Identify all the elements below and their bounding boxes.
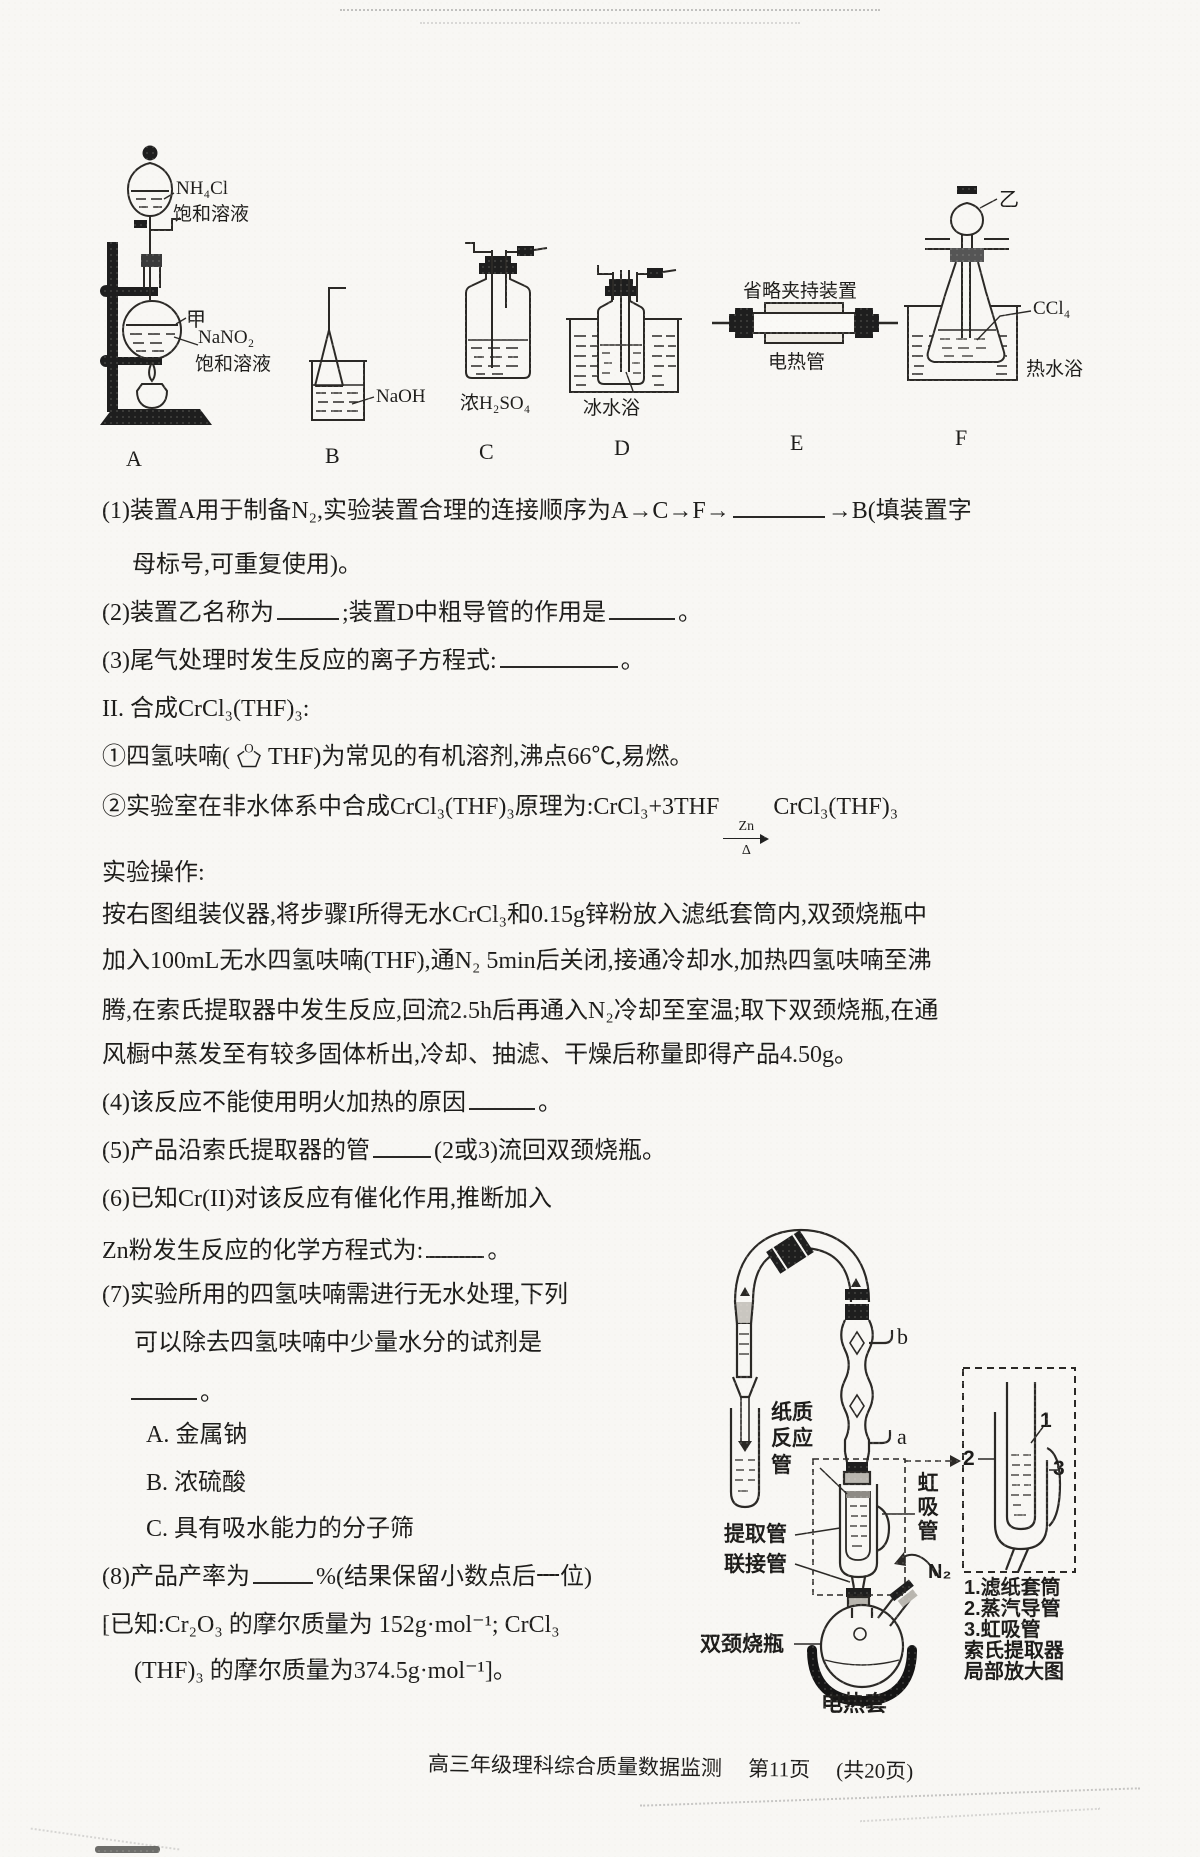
question-2-blank-1[interactable]: [277, 602, 339, 620]
question-4: (4)该反应不能使用明火加热的原因。: [102, 1088, 562, 1118]
siphon-tube-label: 虹吸管: [916, 1472, 940, 1544]
question-1-pre: (1)装置A用于制备N₂,实验装置合理的连接顺序为A→C→F→: [102, 498, 730, 524]
apparatus-f-reagent-label: CCl₄: [1033, 298, 1070, 320]
apparatus-f-device-mark: 乙: [999, 183, 1019, 212]
scan-smudge: [95, 1846, 160, 1853]
paper-reaction-tube-label: 纸质反应管: [771, 1400, 821, 1479]
question-8-pre: (8)产品产率为: [102, 1564, 250, 1590]
known-data-line-1: [已知:Cr₂O₃ 的摩尔质量为 152g·mol⁻¹; CrCl₃: [102, 1610, 560, 1640]
apparatus-c-icon: [465, 243, 547, 378]
question-1-post: →B(填装置字: [828, 498, 972, 524]
procedure-line-4: 风橱中蒸发至有较多固体析出,冷却、抽滤、干燥后称量即得产品4.50g。: [102, 1040, 858, 1070]
apparatus-e-icon: [712, 303, 898, 343]
inset-caption-5: 局部放大图: [964, 1660, 1064, 1685]
question-5-blank[interactable]: [373, 1140, 431, 1158]
procedure-line-3: 腾,在索氏提取器中发生反应,回流2.5h后再通入N₂冷却至室温;取下双颈烧瓶,在…: [102, 996, 938, 1026]
apparatus-b-reagent-label: NaOH: [376, 386, 426, 408]
option-b: B. 浓硫酸: [146, 1468, 246, 1498]
equation-pre: ②实验室在非水体系中合成CrCl₃(THF)₃原理为:CrCl₃+3THF: [102, 794, 719, 820]
apparatus-e-heater-label: 电热管: [768, 347, 825, 374]
apparatus-f-icon: [904, 186, 1031, 380]
option-a: A. 金属钠: [146, 1420, 247, 1450]
operation-title: 实验操作:: [102, 858, 205, 888]
apparatus-c-reagent-label: 浓H₂SO₄: [460, 388, 530, 415]
question-6-end: 。: [487, 1238, 511, 1264]
question-4-pre: (4)该反应不能使用明火加热的原因: [102, 1090, 466, 1116]
soxhlet-apparatus-icon: [731, 1230, 961, 1701]
n2-inlet-label: N₂: [928, 1560, 951, 1585]
question-3-end: 。: [621, 648, 645, 674]
inset-number-1: 1: [1040, 1408, 1052, 1434]
question-3-pre: (3)尾气处理时发生反应的离子方程式:: [102, 648, 497, 674]
arrow-shaft: [723, 834, 769, 844]
question-2-end: 。: [678, 600, 702, 626]
apparatus-d-letter: D: [614, 435, 630, 461]
scan-artifact-bottom-2: [860, 1808, 1100, 1823]
section-2-heading: II. 合成CrCl₃(THF)₃:: [102, 694, 309, 724]
question-7-end: 。: [200, 1380, 224, 1406]
question-2: (2)装置乙名称为;装置D中粗导管的作用是。: [102, 598, 702, 628]
apparatus-f-bath-label: 热水浴: [1026, 354, 1083, 381]
apparatus-c-letter: C: [479, 439, 494, 465]
question-8: (8)产品产率为%(结果保留小数点后一位): [102, 1562, 592, 1592]
question-5: (5)产品沿索氏提取器的管(2或3)流回双颈烧瓶。: [102, 1136, 666, 1166]
scan-artifact-bottom: [640, 1787, 1140, 1806]
reaction-condition-arrow: ZnΔ: [723, 820, 769, 858]
question-2-pre: (2)装置乙名称为: [102, 600, 274, 626]
apparatus-e-note-label: 省略夹持装置: [743, 276, 857, 303]
question-6-line-1: (6)已知Cr(II)对该反应有催化作用,推断加入: [102, 1184, 552, 1214]
question-8-blank[interactable]: [253, 1566, 313, 1584]
note-2-equation: ②实验室在非水体系中合成CrCl₃(THF)₃原理为:CrCl₃+3THFZnΔ…: [102, 792, 898, 858]
question-6-line-2: Zn粉发生反应的化学方程式为:。: [102, 1236, 511, 1266]
port-a-label: a: [897, 1424, 907, 1450]
question-5-pre: (5)产品沿索氏提取器的管: [102, 1138, 370, 1164]
footer-page-number: 第11页: [748, 1753, 811, 1784]
known-data-line-2: (THF)₃ 的摩尔质量为374.5g·mol⁻¹]。: [134, 1656, 517, 1686]
question-3: (3)尾气处理时发生反应的离子方程式:。: [102, 646, 645, 676]
extract-tube-label: 提取管: [724, 1522, 787, 1548]
port-b-label: b: [897, 1324, 908, 1350]
connect-tube-label: 联接管: [724, 1552, 787, 1578]
question-1-line-1: (1)装置A用于制备N₂,实验装置合理的连接顺序为A→C→F→→B(填装置字: [102, 496, 972, 526]
scan-artifact-top: [340, 9, 880, 11]
apparatus-a-reagent-label-2: 饱和溶液: [173, 199, 249, 226]
arrow-bottom-condition: Δ: [742, 844, 751, 858]
apparatus-a-letter: A: [126, 446, 142, 472]
scan-artifact-top-2: [420, 22, 800, 24]
equation-post: CrCl₃(THF)₃: [773, 794, 898, 820]
question-7-blank[interactable]: [131, 1382, 197, 1400]
inset-number-2: 2: [963, 1446, 975, 1472]
question-7-blank-line: 。: [128, 1378, 224, 1408]
arrow-top-condition: Zn: [739, 820, 755, 834]
apparatus-b-letter: B: [325, 443, 340, 469]
note-1-post: THF)为常见的有机溶剂,沸点66℃,易燃。: [268, 744, 693, 770]
question-7-line-1: (7)实验所用的四氢呋喃需进行无水处理,下列: [102, 1280, 568, 1310]
procedure-line-1: 按右图组装仪器,将步骤I所得无水CrCl₃和0.15g锌粉放入滤纸套筒内,双颈烧…: [102, 900, 927, 930]
footer-page-total: (共20页): [836, 1754, 913, 1785]
question-6-blank[interactable]: [426, 1240, 484, 1258]
note-1-pre: ①四氢呋喃(: [102, 744, 230, 770]
svg-text:O: O: [244, 742, 253, 756]
apparatus-a-reagent-label: NH₄Cl: [176, 178, 228, 200]
question-7-line-2: 可以除去四氢呋喃中少量水分的试剂是: [134, 1328, 542, 1358]
question-4-end: 。: [538, 1090, 562, 1116]
question-2-blank-2[interactable]: [609, 602, 675, 620]
thf-ring-structure-icon: O: [234, 742, 264, 769]
apparatus-d-icon: [566, 265, 682, 392]
procedure-line-2: 加入100mL无水四氢呋喃(THF),通N₂ 5min后关闭,接通冷却水,加热四…: [102, 946, 932, 976]
question-1-line-2: 母标号,可重复使用)。: [132, 550, 362, 580]
apparatus-a-reagent2-label: NaNO₂: [198, 327, 254, 349]
apparatus-a-reagent2-label-2: 饱和溶液: [195, 349, 271, 376]
footer-title: 高三年级理科综合质量数据监测: [428, 1748, 722, 1783]
option-c: C. 具有吸水能力的分子筛: [146, 1514, 414, 1544]
exam-page: NH₄Cl 饱和溶液 甲 NaNO₂ 饱和溶液 NaOH 浓H₂SO₄ 冰水浴 …: [0, 0, 1200, 1857]
heating-mantle-label: 电热套: [821, 1690, 887, 1718]
note-1-thf: ①四氢呋喃(OTHF)为常见的有机溶剂,沸点66℃,易燃。: [102, 742, 693, 772]
question-1-blank[interactable]: [733, 500, 825, 518]
apparatus-e-letter: E: [790, 430, 803, 456]
page-footer: 高三年级理科综合质量数据监测 第11页 (共20页): [428, 1748, 968, 1786]
question-8-post: %(结果保留小数点后一位): [316, 1564, 592, 1590]
apparatus-b-icon: [309, 288, 374, 420]
question-2-mid: ;装置D中粗导管的作用是: [342, 600, 606, 626]
two-neck-flask-label: 双颈烧瓶: [700, 1632, 784, 1658]
question-4-blank[interactable]: [469, 1092, 535, 1110]
inset-number-3: 3: [1053, 1456, 1065, 1482]
question-3-blank[interactable]: [500, 650, 618, 668]
question-5-post: (2或3)流回双颈烧瓶。: [434, 1138, 666, 1164]
apparatus-f-letter: F: [955, 425, 967, 451]
apparatus-d-bath-label: 冰水浴: [583, 393, 640, 420]
question-6-pre: Zn粉发生反应的化学方程式为:: [102, 1238, 423, 1264]
